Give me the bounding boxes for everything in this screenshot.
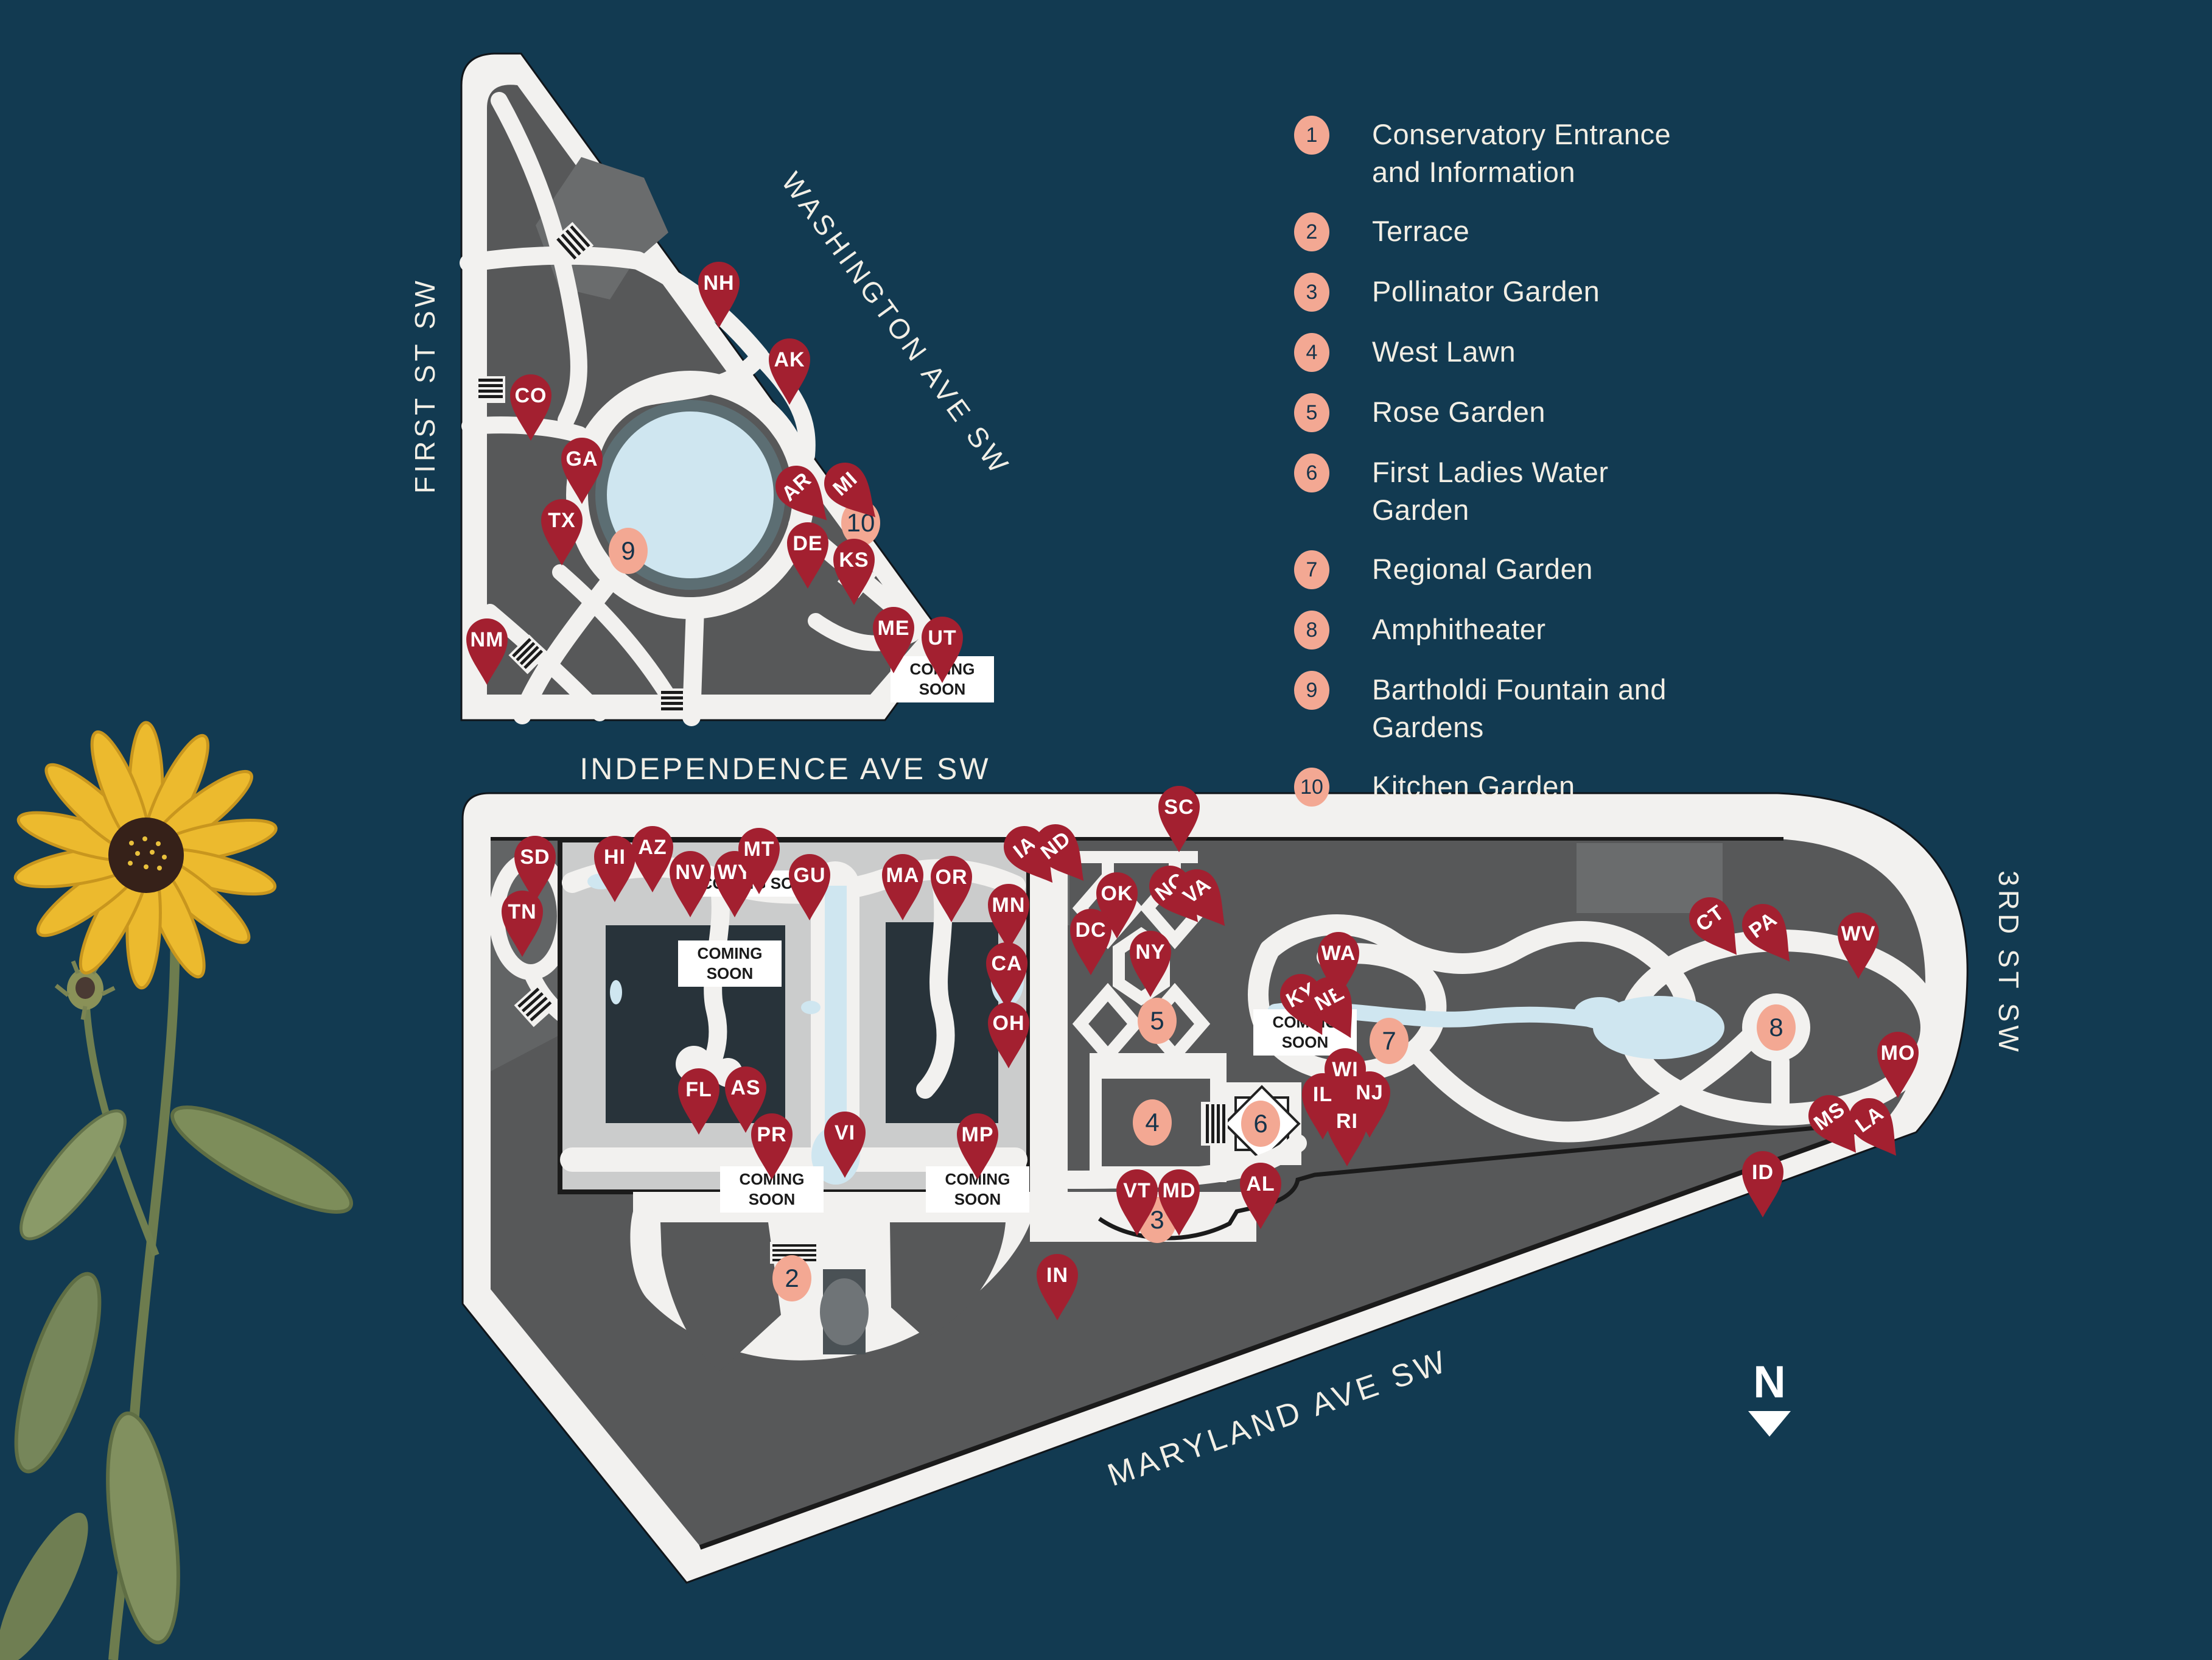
legend-row-8: 8 Amphitheater [1294,611,1964,650]
map-badge-2: 2 [772,1255,811,1301]
legend-number: 8 [1306,618,1318,642]
legend-row-2: 2 Terrace [1294,212,1964,251]
legend-label: Terrace [1372,212,1469,250]
map-legend: 1 Conservatory Entrance and Information … [1294,116,1964,828]
pin-label: CO [507,384,555,408]
state-pin-nv: NV [667,848,714,920]
legend-row-6: 6 First Ladies Water Garden [1294,454,1964,529]
street-label-3rd-st: 3RD ST SW [1992,870,2025,1056]
pin-label: GU [786,864,833,888]
pin-label: UT [919,626,966,650]
pin-label: WA [1315,942,1362,965]
pin-label: TN [499,900,546,924]
pin-label: GA [558,447,606,471]
legend-number: 7 [1306,558,1318,582]
pin-label: OR [928,866,975,889]
legend-badge: 5 [1294,393,1329,432]
legend-number: 2 [1306,220,1318,244]
badge-number: 6 [1253,1109,1267,1138]
state-pin-ks: KS [830,536,878,608]
state-pin-mp: MP [954,1110,1001,1182]
state-pin-oh: OH [985,999,1032,1071]
state-pin-wv: WV [1835,909,1882,981]
state-pin-md: MD [1155,1166,1203,1238]
pin-label: IN [1034,1264,1081,1287]
legend-label: Kitchen Garden [1372,768,1575,805]
pin-label: PR [748,1123,796,1147]
state-pin-pr: PR [748,1110,796,1182]
map-badge-5: 5 [1138,998,1177,1044]
pin-label: VI [821,1121,869,1145]
state-pin-tn: TN [499,888,546,959]
badge-number: 4 [1145,1108,1159,1137]
legend-badge: 7 [1294,550,1329,589]
street-label-first-st: FIRST ST SW [408,277,441,494]
pin-label: NH [695,271,743,295]
state-pin-ri: RI [1323,1097,1371,1169]
botanic-garden-map-poster: WASHINGTON AVE SW FIRST ST SW INDEPENDEN… [0,0,2212,1660]
state-pin-ak: AK [766,335,813,407]
coming-soon-note: COMING SOON [678,940,782,987]
state-pin-sc: SC [1155,783,1203,855]
legend-badge: 10 [1294,768,1329,807]
legend-label: First Ladies Water Garden [1372,454,1713,529]
state-pin-ny: NY [1127,928,1174,1000]
legend-badge: 2 [1294,212,1329,251]
pin-label: ME [870,617,917,640]
map-badge-6: 6 [1241,1101,1280,1147]
legend-row-1: 1 Conservatory Entrance and Information [1294,116,1964,191]
pin-label: CA [983,952,1031,976]
legend-number: 1 [1306,124,1318,147]
black-eyed-susan-illustration [0,723,362,1660]
pin-label: AS [722,1076,769,1100]
north-compass-label: N [1753,1356,1785,1408]
pin-label: DE [784,532,831,556]
pin-label: RI [1323,1110,1371,1133]
legend-number: 5 [1306,401,1318,425]
legend-label: Conservatory Entrance and Information [1372,116,1713,191]
map-badge-4: 4 [1133,1099,1172,1146]
state-pin-or: OR [928,853,975,925]
pin-label: NV [667,861,714,884]
pin-label: MD [1155,1179,1203,1203]
state-pin-wa: WA [1315,929,1362,1001]
pin-label: AL [1237,1172,1284,1196]
legend-label: Bartholdi Fountain and Gardens [1372,671,1713,746]
state-pin-me: ME [870,604,917,676]
legend-row-4: 4 West Lawn [1294,333,1964,372]
map-badge-7: 7 [1370,1018,1409,1064]
state-pin-ut: UT [919,614,966,685]
badge-number: 5 [1150,1006,1164,1035]
state-pin-mt: MT [735,825,783,897]
north-arrow-icon [1748,1411,1791,1437]
legend-badge: 4 [1294,333,1329,372]
flower-head [13,723,279,989]
state-pin-co: CO [507,371,555,443]
pin-label: WV [1835,922,1882,946]
badge-number: 8 [1769,1013,1783,1042]
street-label-independence-ave: INDEPENDENCE AVE SW [579,751,990,786]
badge-number: 2 [785,1264,799,1293]
pin-label: NY [1127,940,1174,964]
legend-label: Rose Garden [1372,393,1545,431]
legend-badge: 8 [1294,611,1329,650]
state-pin-vt: VT [1113,1166,1161,1238]
state-pin-mo: MO [1874,1029,1922,1101]
legend-row-9: 9 Bartholdi Fountain and Gardens [1294,671,1964,746]
legend-badge: 1 [1294,116,1329,155]
terrace-statue [820,1278,869,1345]
legend-badge: 6 [1294,454,1329,492]
legend-number: 6 [1306,461,1318,485]
legend-label: West Lawn [1372,333,1516,371]
pin-label: MO [1874,1042,1922,1065]
legend-number: 4 [1306,341,1318,365]
pin-label: MT [735,838,783,861]
pin-label: NM [463,628,511,652]
pin-label: AK [766,348,813,372]
legend-label: Pollinator Garden [1372,273,1600,310]
legend-number: 9 [1306,679,1318,702]
state-pin-vi: VI [821,1108,869,1180]
pin-label: SC [1155,796,1203,819]
legend-number: 10 [1300,776,1323,799]
state-pin-nh: NH [695,259,743,331]
pin-label: ID [1739,1161,1787,1185]
map-badge-9: 9 [609,528,648,574]
legend-row-10: 10 Kitchen Garden [1294,768,1964,807]
state-pin-dc: DC [1067,906,1115,978]
pin-label: MP [954,1123,1001,1147]
pin-label: DC [1067,919,1115,942]
pin-label: OK [1093,882,1141,906]
pin-label: MN [985,894,1032,917]
pin-label: KS [830,548,878,572]
badge-number: 7 [1382,1026,1396,1056]
state-pin-nm: NM [463,615,511,687]
state-pin-fl: FL [675,1065,723,1137]
legend-label: Amphitheater [1372,611,1546,648]
legend-number: 3 [1306,281,1318,304]
badge-number: 9 [621,536,635,566]
legend-row-5: 5 Rose Garden [1294,393,1964,432]
state-pin-id: ID [1739,1148,1787,1220]
pin-label: FL [675,1078,723,1102]
state-pin-de: DE [784,519,831,591]
state-pin-ma: MA [879,851,926,923]
pin-label: TX [538,509,586,533]
state-pin-in: IN [1034,1251,1081,1323]
legend-row-7: 7 Regional Garden [1294,550,1964,589]
pin-label: VT [1113,1179,1161,1203]
map-badge-8: 8 [1757,1004,1796,1051]
coming-soon-text: COMING SOON [698,944,763,982]
pin-label: OH [985,1012,1032,1035]
legend-row-3: 3 Pollinator Garden [1294,273,1964,312]
pin-label: MA [879,864,926,888]
legend-badge: 9 [1294,671,1329,710]
legend-label: Regional Garden [1372,550,1593,588]
state-pin-al: AL [1237,1160,1284,1231]
legend-badge: 3 [1294,273,1329,312]
state-pin-tx: TX [538,496,586,568]
state-pin-gu: GU [786,851,833,923]
pin-label: SD [511,846,559,869]
